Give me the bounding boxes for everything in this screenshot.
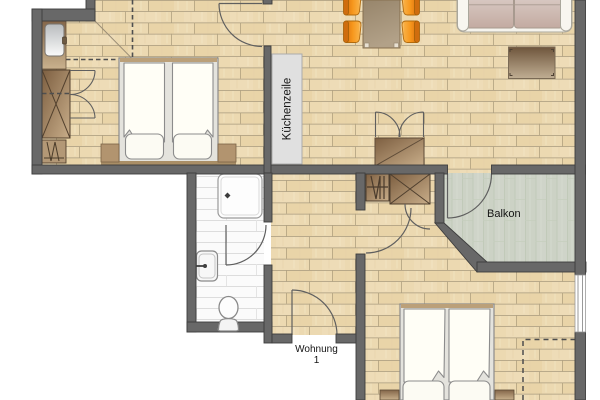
svg-text:Balkon: Balkon <box>487 208 521 220</box>
svg-text:Wohnung: Wohnung <box>295 344 338 355</box>
svg-text:1: 1 <box>314 355 320 366</box>
svg-text:Küchenzeile: Küchenzeile <box>282 78 294 141</box>
